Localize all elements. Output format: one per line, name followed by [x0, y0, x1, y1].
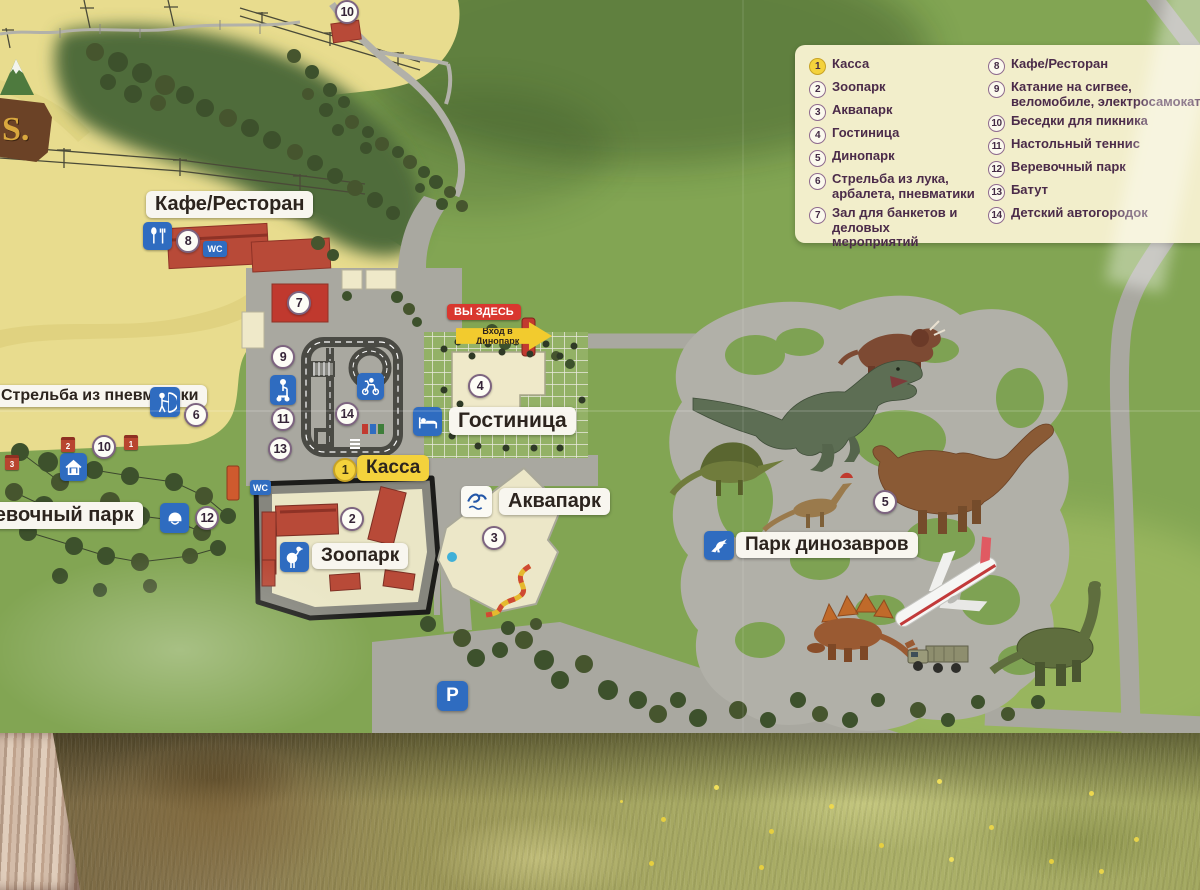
legend-item-label: Аквапарк	[832, 103, 892, 118]
park-map-sign: S. Кафе/Ресторан Стрельба из пневматики …	[0, 0, 1200, 736]
gazebo-marker: 2	[61, 437, 75, 452]
gazebo-marker: 1	[124, 435, 138, 450]
map-marker-3: 3	[482, 526, 506, 550]
legend-item-number: 2	[809, 81, 826, 98]
legend-item-number: 13	[988, 184, 1005, 201]
truck-figure	[908, 646, 968, 673]
legend-item-number: 6	[809, 173, 826, 190]
wildflowers	[620, 800, 623, 803]
legend-item-label: Касса	[832, 57, 869, 72]
legend-item: 7Зал для банкетов и деловых мероприятий	[809, 206, 978, 250]
gazebo-marker: 3	[5, 455, 19, 470]
legend-item-number: 11	[988, 138, 1005, 155]
map-marker-6: 6	[184, 403, 208, 427]
wc-badge: WC	[203, 241, 227, 257]
legend-item: 5Динопарк	[809, 149, 978, 167]
map-marker-5: 5	[873, 490, 897, 514]
legend-item-number: 12	[988, 161, 1005, 178]
legend-item-label: Зал для банкетов и деловых мероприятий	[832, 206, 978, 250]
wc-badge: WC	[250, 480, 271, 495]
legend-item-number: 7	[809, 207, 826, 224]
legend-item-number: 5	[809, 150, 826, 167]
legend-item-label: Веревочный парк	[1011, 160, 1126, 175]
sunlight-wash	[0, 520, 440, 736]
parking-icon: P	[437, 681, 468, 711]
moped-icon	[357, 373, 384, 400]
dino-icon	[704, 531, 734, 560]
map-marker-8: 8	[176, 229, 200, 253]
banner-crease	[0, 410, 1200, 412]
segway-icon	[270, 375, 296, 405]
legend-item-label: Беседки для пикника	[1011, 114, 1148, 129]
you-are-here-badge: ВЫ ЗДЕСЬ	[447, 304, 521, 320]
legend-item-number: 8	[988, 58, 1005, 75]
map-marker-9: 9	[271, 345, 295, 369]
map-marker-13: 13	[268, 437, 292, 461]
photo-of-park-map-sign: S. Кафе/Ресторан Стрельба из пневматики …	[0, 0, 1200, 890]
legend-item-label: Настольный теннис	[1011, 137, 1140, 152]
map-marker-7: 7	[287, 291, 311, 315]
legend-item: 4Гостиница	[809, 126, 978, 144]
legend-item-label: Динопарк	[832, 149, 895, 164]
legend-item-number: 3	[809, 104, 826, 121]
legend-item: 6Стрельба из лука, арбалета, пневматики	[809, 172, 978, 201]
legend-item-label: Батут	[1011, 183, 1048, 198]
legend-item: 3Аквапарк	[809, 103, 978, 121]
legend-item: 2Зоопарк	[809, 80, 978, 98]
legend-col-1: 1Касса2Зоопарк3Аквапарк4Гостиница5Динопа…	[809, 57, 978, 231]
picnic-house-icon	[60, 453, 87, 481]
legend-item-number: 14	[988, 207, 1005, 224]
legend-item-number: 10	[988, 115, 1005, 132]
legend-item-label: Кафе/Ресторан	[1011, 57, 1108, 72]
legend-item: 1Касса	[809, 57, 978, 75]
map-marker-10: 10	[92, 435, 116, 459]
map-marker-10: 10	[335, 0, 359, 24]
map-marker-4: 4	[468, 374, 492, 398]
legend-item-label: Гостиница	[832, 126, 899, 141]
map-marker-1: 1	[333, 458, 357, 482]
map-marker-14: 14	[335, 402, 359, 426]
legend-item-number: 9	[988, 81, 1005, 98]
banner-seam	[742, 0, 744, 733]
mountain-icon	[0, 55, 38, 97]
park-logo: S.	[0, 98, 52, 162]
legend-item-number: 1	[809, 58, 826, 75]
ticket-office-label: Касса	[357, 455, 429, 481]
cafe-label: Кафе/Ресторан	[146, 191, 313, 218]
aquapark-label: Аквапарк	[499, 488, 610, 515]
restaurant-icon	[143, 222, 172, 250]
aquapark-logo-icon	[461, 486, 492, 517]
legend-item-label: Зоопарк	[832, 80, 886, 95]
legend-item-label: Стрельба из лука, арбалета, пневматики	[832, 172, 978, 201]
legend-item-number: 4	[809, 127, 826, 144]
archer-icon	[150, 387, 180, 417]
dry-grass-patch	[70, 733, 360, 890]
dino-park-label: Парк динозавров	[736, 532, 918, 558]
